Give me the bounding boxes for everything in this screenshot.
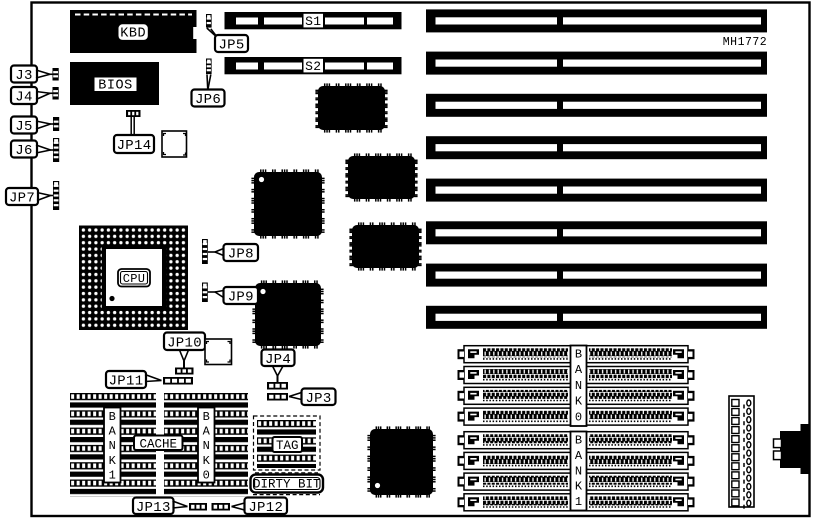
svg-text:N: N (575, 379, 582, 393)
svg-text:JP13: JP13 (136, 500, 171, 516)
svg-text:A: A (109, 425, 117, 439)
svg-text:BIOS: BIOS (98, 79, 132, 94)
svg-text:DIRTY BIT: DIRTY BIT (253, 478, 321, 492)
svg-text:J4: J4 (15, 90, 32, 106)
svg-text:J6: J6 (15, 143, 32, 159)
svg-text:A: A (203, 425, 211, 439)
svg-text:TAG: TAG (276, 439, 299, 453)
svg-text:JP6: JP6 (195, 92, 221, 108)
svg-text:J5: J5 (15, 119, 32, 135)
svg-text:JP12: JP12 (248, 500, 283, 516)
svg-text:1: 1 (109, 468, 116, 482)
svg-text:JP10: JP10 (167, 335, 202, 351)
svg-text:S1: S1 (305, 14, 321, 29)
svg-text:K: K (203, 454, 211, 468)
svg-text:CACHE: CACHE (139, 437, 177, 451)
svg-text:JP9: JP9 (228, 290, 254, 306)
svg-text:A: A (575, 449, 583, 463)
svg-text:B: B (575, 348, 582, 362)
svg-text:0: 0 (203, 468, 210, 482)
svg-text:B: B (203, 410, 210, 424)
svg-text:K: K (575, 395, 583, 409)
svg-text:JP7: JP7 (9, 191, 35, 207)
svg-text:K: K (575, 480, 583, 494)
svg-text:JP11: JP11 (109, 374, 144, 390)
svg-text:N: N (575, 464, 582, 478)
svg-text:0: 0 (575, 410, 582, 424)
svg-text:A: A (575, 363, 583, 377)
svg-text:JP4: JP4 (265, 352, 291, 368)
svg-text:B: B (109, 410, 116, 424)
svg-text:JP5: JP5 (218, 38, 244, 54)
svg-text:KBD: KBD (120, 27, 146, 42)
svg-text:1: 1 (575, 495, 582, 509)
svg-text:MH1772: MH1772 (723, 36, 767, 49)
svg-text:JP8: JP8 (228, 247, 254, 263)
svg-text:JP3: JP3 (305, 391, 331, 407)
svg-text:N: N (109, 439, 116, 453)
svg-text:B: B (575, 434, 582, 448)
svg-text:J3: J3 (15, 68, 32, 84)
svg-text:S2: S2 (305, 59, 321, 74)
svg-text:JP14: JP14 (117, 138, 152, 154)
svg-text:N: N (203, 439, 210, 453)
svg-text:K: K (109, 454, 117, 468)
svg-text:CPU: CPU (123, 272, 146, 286)
